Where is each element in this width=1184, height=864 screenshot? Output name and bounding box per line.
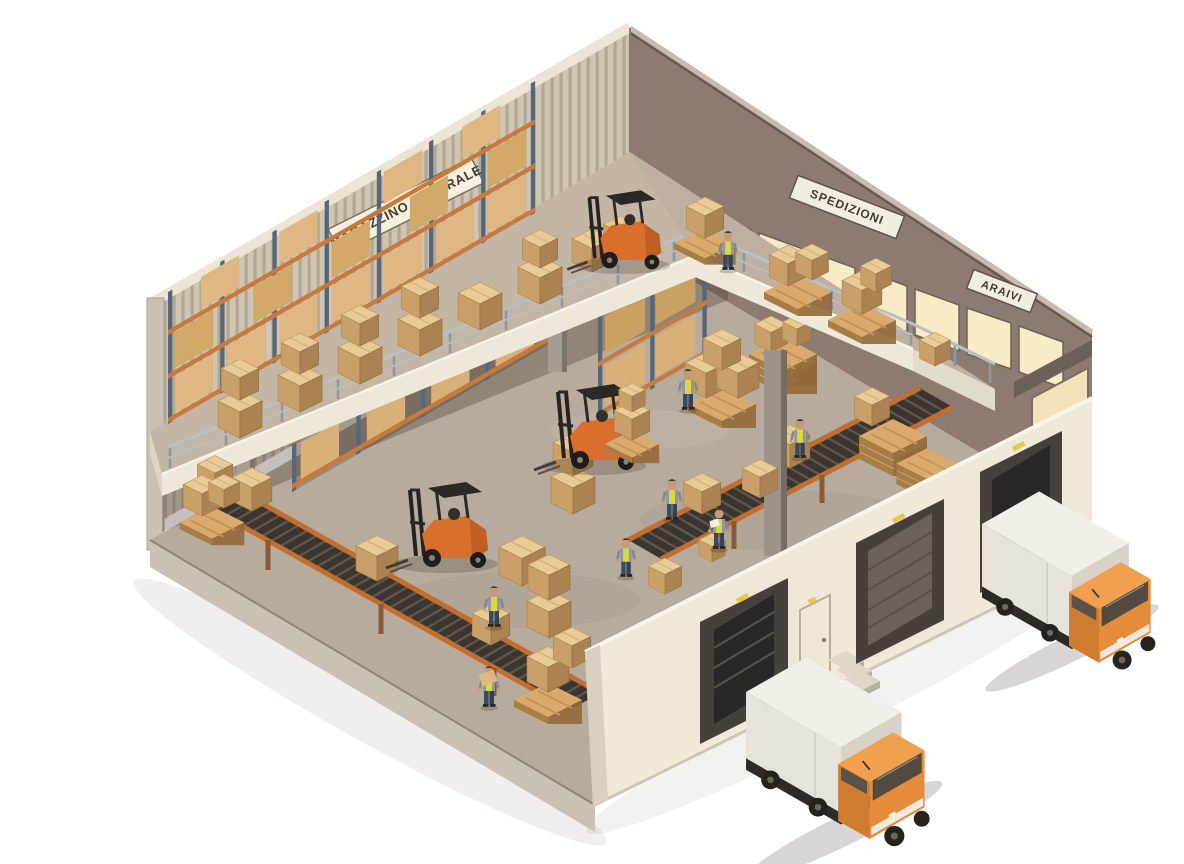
truck-2 [982,491,1155,669]
warehouse-illustration: MAGAZZINO CENTRALE SPEDIZIONI ARAIVI [0,0,1184,864]
wall-cut-edge-left [147,298,164,550]
